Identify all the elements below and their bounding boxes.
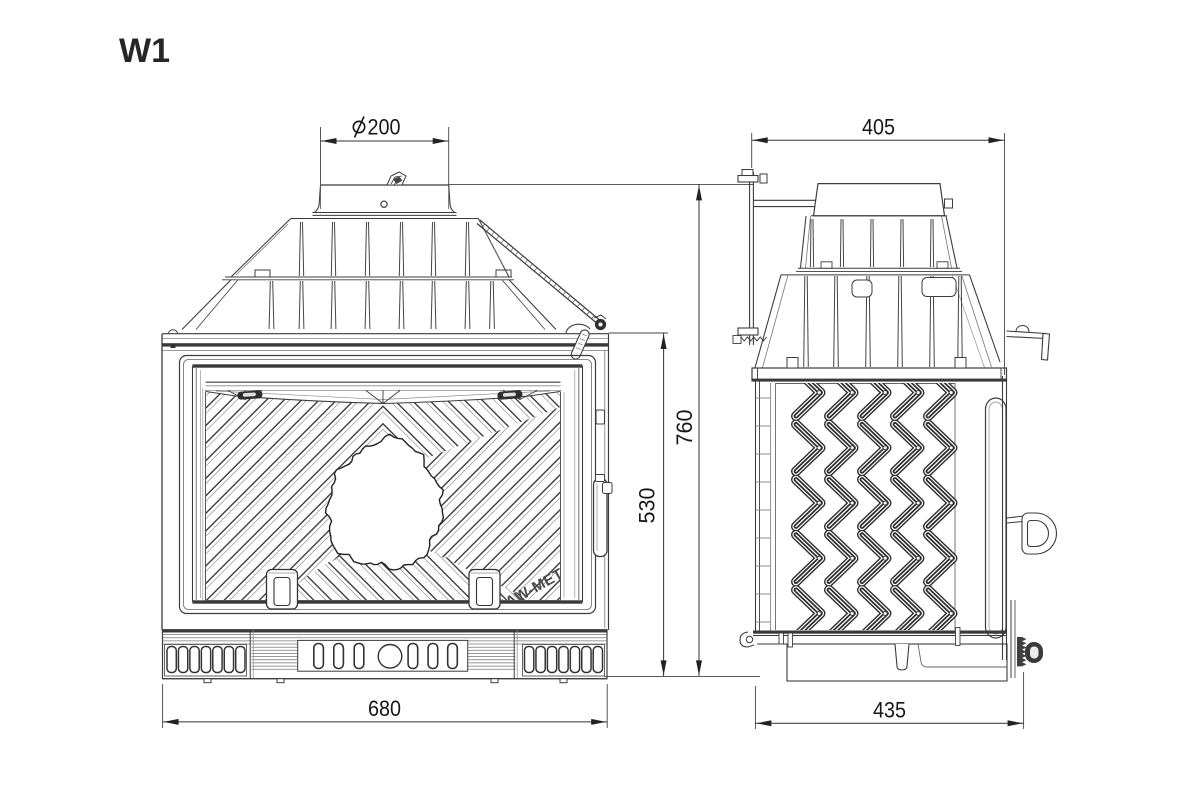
svg-text:405: 405	[862, 115, 895, 140]
svg-text:W1: W1	[119, 32, 170, 70]
svg-text:200: 200	[368, 115, 401, 140]
svg-text:530: 530	[635, 488, 660, 524]
svg-text:760: 760	[672, 410, 697, 446]
svg-text:435: 435	[873, 698, 906, 723]
svg-text:680: 680	[368, 696, 401, 721]
